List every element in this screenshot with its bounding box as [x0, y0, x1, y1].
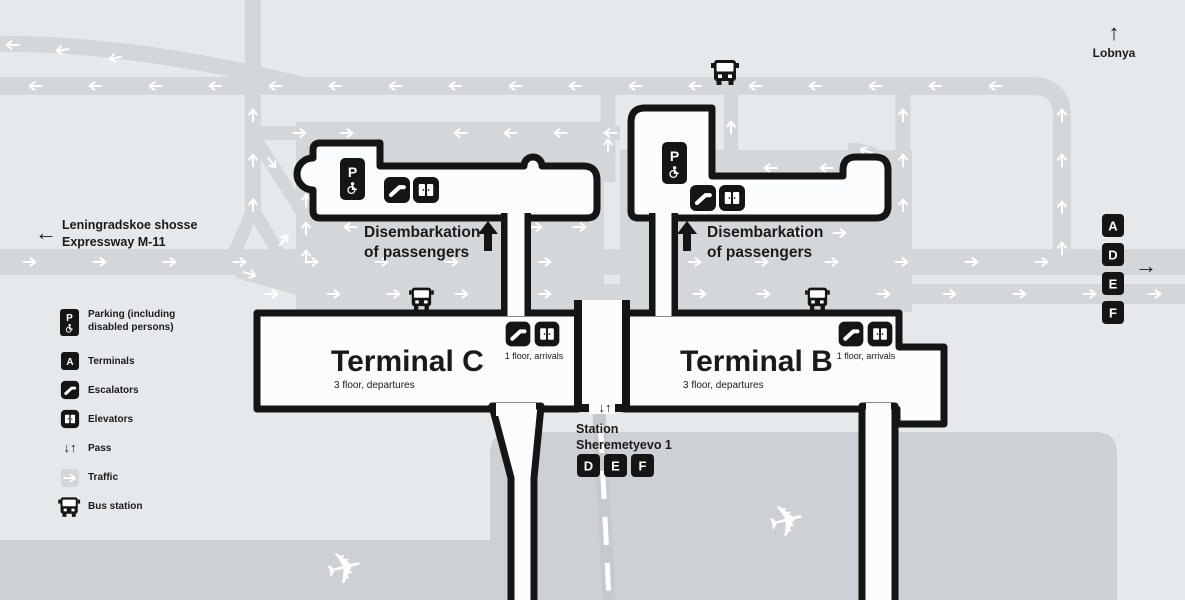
up-arrow-icon: ↑: [1109, 20, 1120, 45]
svg-text:A: A: [66, 357, 73, 368]
parking-icon: P: [60, 309, 79, 336]
svg-text:E: E: [611, 459, 620, 474]
terminal-b-pier: [862, 406, 895, 600]
terminal-c-title: Terminal C: [331, 345, 484, 378]
legend-pass-label: Pass: [88, 443, 112, 454]
escalator-icon: [690, 185, 716, 211]
traffic-icon: [61, 469, 79, 487]
legend-parking-label-1: Parking (including: [88, 309, 175, 320]
elevator-icon: [413, 177, 439, 203]
svg-text:P: P: [66, 313, 73, 324]
parking-icon: P: [662, 142, 687, 184]
svg-text:F: F: [1109, 306, 1117, 321]
svg-text:D: D: [584, 459, 593, 474]
lobnya-label: Lobnya: [1093, 46, 1136, 60]
svg-text:Disembarkation: Disembarkation: [364, 224, 480, 241]
terminal-c-arrivals-label: 1 floor, arrivals: [505, 351, 564, 361]
station-corridor: [574, 300, 630, 414]
right-badge-f: F: [1102, 301, 1124, 324]
pass-icon: ↓↑: [64, 440, 77, 455]
right-badge-d: D: [1102, 243, 1124, 266]
legend-elevators-label: Elevators: [88, 414, 133, 425]
legend-terminals-label: Terminals: [88, 356, 135, 367]
terminal-b-subtitle: 3 floor, departures: [683, 380, 764, 391]
svg-text:P: P: [670, 148, 679, 164]
airport-map: ✈ ✈ P P Disembarkation of passengers Dis…: [0, 0, 1185, 600]
expressway-label-1: Leningradskoe shosse: [62, 218, 198, 232]
right-badge-e: E: [1102, 272, 1124, 295]
walkway-corridor-c: [501, 209, 531, 316]
elevator-icon: [868, 322, 893, 347]
parking-icon: P: [340, 158, 365, 200]
walkway-corridor-b: [649, 209, 678, 316]
expressway-label-2: Expressway M-11: [62, 235, 166, 249]
svg-text:A: A: [1108, 219, 1118, 234]
map-canvas: ✈ ✈ P P Disembarkation of passengers Dis…: [0, 0, 1185, 600]
terminal-c-subtitle: 3 floor, departures: [334, 380, 415, 391]
svg-text:of passengers: of passengers: [364, 244, 469, 261]
legend-escalators-label: Escalators: [88, 385, 139, 396]
station-badge-f: F: [631, 454, 654, 477]
svg-text:P: P: [348, 164, 357, 180]
svg-text:E: E: [1109, 277, 1118, 292]
escalator-icon: [61, 381, 79, 399]
terminal-badge-icon: A: [61, 352, 79, 370]
escalator-icon: [839, 322, 864, 347]
right-badge-a: A: [1102, 214, 1124, 237]
elevator-icon: [61, 410, 79, 428]
svg-text:Disembarkation: Disembarkation: [707, 224, 823, 241]
station-badge-d: D: [577, 454, 600, 477]
escalator-icon: [506, 322, 531, 347]
left-arrow-icon: ←: [35, 220, 57, 245]
svg-text:D: D: [1108, 248, 1117, 263]
escalator-icon: [384, 177, 410, 203]
pass-icon: ↓↑: [599, 400, 612, 415]
terminal-b-title: Terminal B: [680, 345, 833, 378]
elevator-icon: [535, 322, 560, 347]
legend-traffic-label: Traffic: [88, 472, 118, 483]
terminal-b-arrivals-label: 1 floor, arrivals: [837, 351, 896, 361]
svg-text:of passengers: of passengers: [707, 244, 812, 261]
pier-b-junction: [866, 403, 891, 416]
svg-text:F: F: [639, 459, 647, 474]
legend-bus-label: Bus station: [88, 501, 142, 512]
right-arrow-icon: →: [1135, 253, 1157, 278]
pier-c-junction: [496, 403, 536, 416]
legend-parking-label-2: disabled persons): [88, 322, 174, 333]
elevator-icon: [719, 185, 745, 211]
station-badge-e: E: [604, 454, 627, 477]
station-name: Sheremetyevo 1: [576, 438, 672, 452]
station-label: Station: [576, 422, 618, 436]
